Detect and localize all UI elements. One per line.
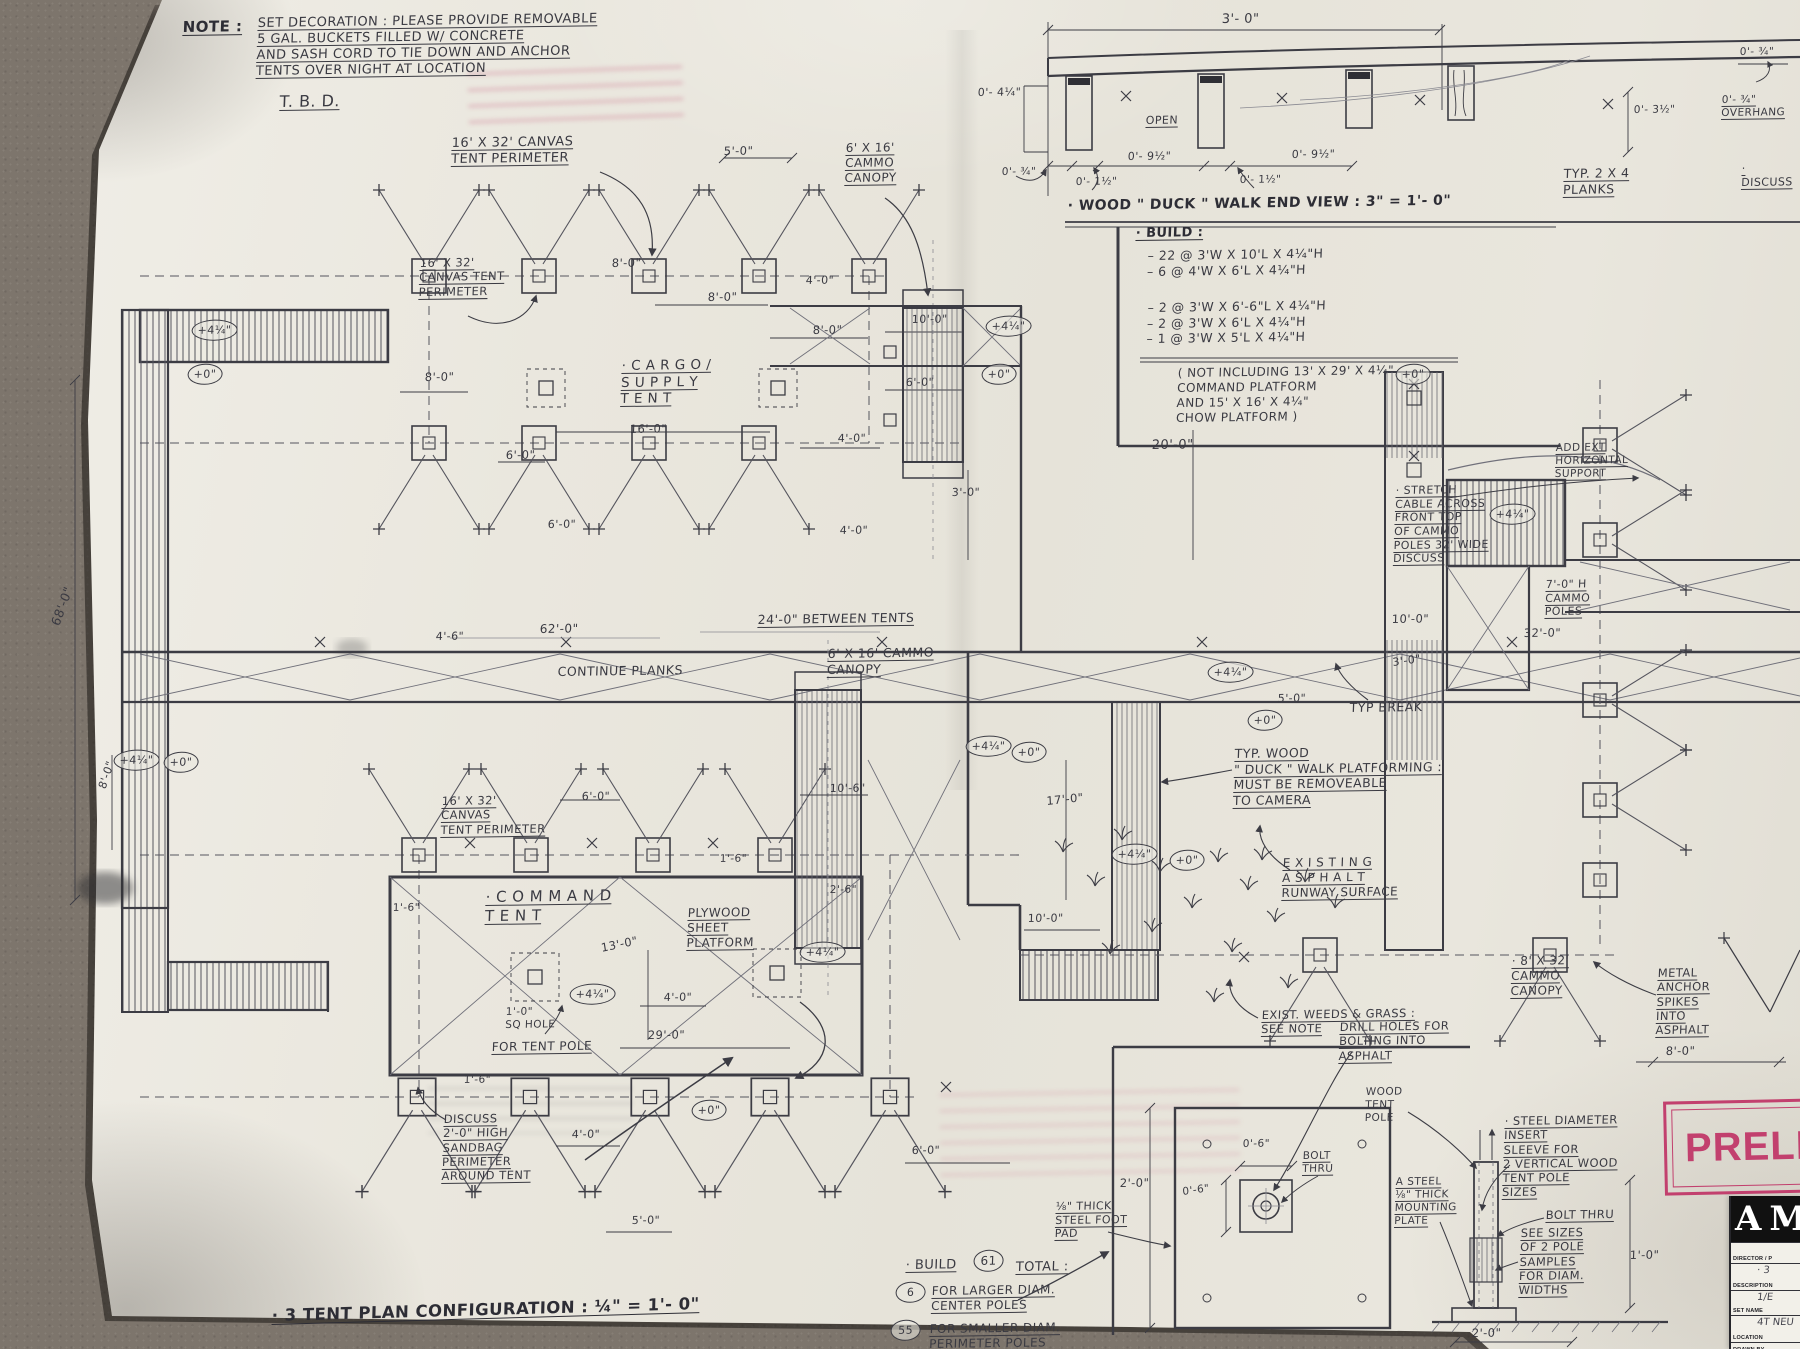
note-body: SET DECORATION : PLEASE PROVIDE REMOVABL… xyxy=(256,11,603,80)
label-wood-tent-pole: WOOD TENT POLE xyxy=(1364,1085,1402,1125)
title-block-row: SET NAME1/E xyxy=(1731,1290,1800,1315)
dim: 10'-6" xyxy=(829,782,865,796)
label-mounting-plate: A STEEL ⅛" THICK MOUNTING PLATE xyxy=(1394,1175,1458,1228)
dim: 8'-0" xyxy=(424,370,454,385)
dim: 0'- 4¼" xyxy=(977,85,1021,99)
dim: 1'-6" xyxy=(719,853,747,866)
dim: 5'-0" xyxy=(631,1214,660,1228)
title-block-row-label: DESCRIPTION xyxy=(1733,1283,1773,1289)
title-block-row: DRAWN BY xyxy=(1731,1342,1800,1349)
label-add-support: ADD EXT HORIZONTAL SUPPORT xyxy=(1554,441,1628,481)
dim: 4'-0" xyxy=(837,432,866,446)
dim-5ft-upper: 5'-0" xyxy=(723,144,753,159)
title-block-row-value: 4T NEU xyxy=(1756,1317,1794,1328)
dim: 6'-0" xyxy=(505,448,535,463)
label-stretch-cable: · STRETCH CABLE ACROSS FRONT TOP OF CAMM… xyxy=(1393,482,1504,565)
label-build-list-1: – 22 @ 3'W X 10'L X 4¼"H – 6 @ 4'W X 6'L… xyxy=(1147,244,1438,279)
title-block-row: DESCRIPTION· 3 xyxy=(1731,1263,1800,1290)
dim: 10'-0" xyxy=(1391,611,1429,626)
label-insert-sleeve: · STEEL DIAMETER INSERT SLEEVE FOR 2 VER… xyxy=(1502,1112,1670,1200)
dim: 1'-6" xyxy=(463,1074,491,1087)
label-build-list-2: – 2 @ 3'W X 6'-6"L X 4¼"H – 2 @ 3'W X 6'… xyxy=(1146,296,1448,347)
label-discuss-right: · DISCUSS xyxy=(1741,161,1800,189)
label-plywood-platform: PLYWOOD SHEET PLATFORM xyxy=(686,905,755,951)
label-build-total: · BUILD xyxy=(905,1257,957,1274)
preliminary-stamp: PRELIM xyxy=(1663,1098,1800,1195)
label-cammo-canopy-upper: 6' X 16' CAMMO CANOPY xyxy=(844,140,898,185)
dim: 0'- 3½" xyxy=(1633,103,1675,117)
label-cammo-canopy-lower: 6' X 16' CAMMO CANOPY xyxy=(827,645,934,678)
dim: 8'-0" xyxy=(707,290,737,305)
dim: 4'-0" xyxy=(663,991,692,1005)
stamp-text: PRELIM xyxy=(1673,1122,1800,1171)
title-block-row: DIRECTOR / P xyxy=(1731,1242,1800,1263)
dim: 4'-0" xyxy=(805,274,834,288)
label-open: OPEN xyxy=(1145,114,1178,128)
label-cargo-tent: · C A R G O / S U P P L Y T E N T xyxy=(620,357,711,408)
label-between-tents: 24'-0" BETWEEN TENTS xyxy=(757,610,914,628)
dim-20ft: 20'-0" xyxy=(1151,437,1193,454)
label-sandbag: DISCUSS 2'-0" HIGH SANDBAG PERIMETER ARO… xyxy=(441,1111,533,1184)
label-typ-planks: TYP. 2 X 4 PLANKS xyxy=(1563,165,1630,197)
dim: 0'- 1½" xyxy=(1239,173,1281,187)
title-block-row: LOCATION4T NEU xyxy=(1731,1315,1800,1342)
dim: 2'-0" xyxy=(1471,1326,1501,1341)
dim: 6'-0" xyxy=(581,790,610,804)
dim: 1'-6" xyxy=(392,902,420,915)
dim: 4'-0" xyxy=(571,1128,600,1142)
label-for-tent-pole: FOR TENT POLE xyxy=(491,1039,592,1055)
dim: 6'-0" xyxy=(905,376,934,390)
dim: 0'- ¾" xyxy=(1739,46,1774,60)
label-drill-holes: DRILL HOLES FOR BOLTING INTO ASPHALT xyxy=(1338,1018,1449,1062)
dim: 8'-0" xyxy=(1665,1044,1695,1059)
label-typ-break: TYP BREAK xyxy=(1349,699,1422,716)
label-center-poles: FOR LARGER DIAM. CENTER POLES xyxy=(931,1282,1056,1313)
blueprint-photo: NOTE :SET DECORATION : PLEASE PROVIDE RE… xyxy=(0,0,1800,1349)
title-block-rows: DIRECTOR / PDESCRIPTION· 3SET NAME1/ELOC… xyxy=(1731,1242,1800,1349)
dim: 62'-0" xyxy=(539,621,578,636)
label-perimeter-poles: FOR SMALLER DIAM. PERIMETER POLES xyxy=(929,1320,1061,1349)
dim: 8'-0" xyxy=(812,323,842,338)
studio-logo: AM xyxy=(1731,1196,1800,1242)
dim: 0'-6" xyxy=(1242,1138,1270,1151)
dim: 4'-6" xyxy=(435,630,464,644)
dim: 2'-0" xyxy=(1119,1176,1149,1191)
dim: 6'-0" xyxy=(911,1144,940,1158)
label-cammo-canopy-832: · 8' X 32' CAMMO CANOPY xyxy=(1510,953,1569,998)
dim: 32'-0" xyxy=(1523,625,1561,640)
dim: 5'-0" xyxy=(1277,692,1306,706)
label-duck-walk-typ: TYP. WOOD " DUCK " WALK PLATFORMING : MU… xyxy=(1233,743,1470,808)
label-total: TOTAL : xyxy=(1015,1259,1069,1276)
note-heading: NOTE : xyxy=(182,17,242,36)
label-metal-spikes: METAL ANCHOR SPIKES INTO ASPHALT xyxy=(1655,965,1711,1037)
dim: 3'-0" xyxy=(951,486,980,500)
dim: 2'-6" xyxy=(829,884,857,897)
title-block: AM DIRECTOR / PDESCRIPTION· 3SET NAME1/E… xyxy=(1729,1196,1800,1349)
dim: 3'- 0" xyxy=(1221,11,1259,28)
dim: 0'- 9½" xyxy=(1127,149,1171,163)
dim: 10'-0" xyxy=(1027,912,1063,926)
label-build-list-head: · BUILD : xyxy=(1135,225,1203,242)
label-tent-perimeter-lower: 16' X 32' CANVAS TENT PERIMETER xyxy=(440,793,547,837)
dim: 16'-0" xyxy=(629,421,667,436)
dim: 1'-0" xyxy=(1629,1248,1659,1263)
dim: 29'-0" xyxy=(647,1027,685,1042)
title-block-row-label: LOCATION xyxy=(1733,1335,1763,1341)
label-pole-samples: SEE SIZES OF 2 POLE SAMPLES FOR DIAM. WI… xyxy=(1518,1225,1586,1297)
dim: 10'-0" xyxy=(911,313,947,327)
label-tent-perimeter-note-upper: 16' X 32' CANVAS TENT PERIMETER xyxy=(418,255,505,299)
label-existing-asphalt: E X I S T I N G A S P H A L T RUNWAY SUR… xyxy=(1281,854,1399,900)
dim: 0'- 1½" xyxy=(1075,175,1117,189)
dim: 8'-0" xyxy=(611,256,641,271)
label-tent-perimeter-upper: 16' X 32' CANVAS TENT PERIMETER xyxy=(451,134,574,168)
note-tbd: T. B. D. xyxy=(279,91,340,112)
label-build-list-note: ( NOT INCLUDING 13' X 29' X 4¼" COMMAND … xyxy=(1176,362,1478,426)
title-block-row-label: SET NAME xyxy=(1733,1308,1763,1314)
label-overhang: 0'- ¾" OVERHANG xyxy=(1721,93,1786,120)
label-continue-planks: CONTINUE PLANKS xyxy=(557,662,683,679)
title-block-row-value: · 3 xyxy=(1756,1265,1770,1276)
label-cammo-poles: 7'-0" H CAMMO POLES xyxy=(1544,577,1591,619)
title-block-row-value: 1/E xyxy=(1756,1292,1773,1303)
label-sq-hole: 1'-0" SQ HOLE xyxy=(505,1005,556,1032)
label-command-tent: · C O M M A N D T E N T xyxy=(485,886,613,925)
dim: 0'- 9½" xyxy=(1291,147,1335,161)
label-bolt-thru-pole: BOLT THRU xyxy=(1545,1207,1614,1222)
label-steel-foot-pad: ⅛" THICK STEEL FOOT PAD xyxy=(1054,1199,1128,1241)
stamp-inner-border: PRELIM xyxy=(1671,1107,1800,1188)
dim: 6'-0" xyxy=(547,518,576,532)
title-block-row-label: DIRECTOR / P xyxy=(1733,1256,1772,1262)
dim: 0'- ¾" xyxy=(1001,166,1036,180)
label-bolt-thru-pad: BOLT THRU xyxy=(1302,1150,1334,1176)
dim: 4'-0" xyxy=(839,524,868,538)
